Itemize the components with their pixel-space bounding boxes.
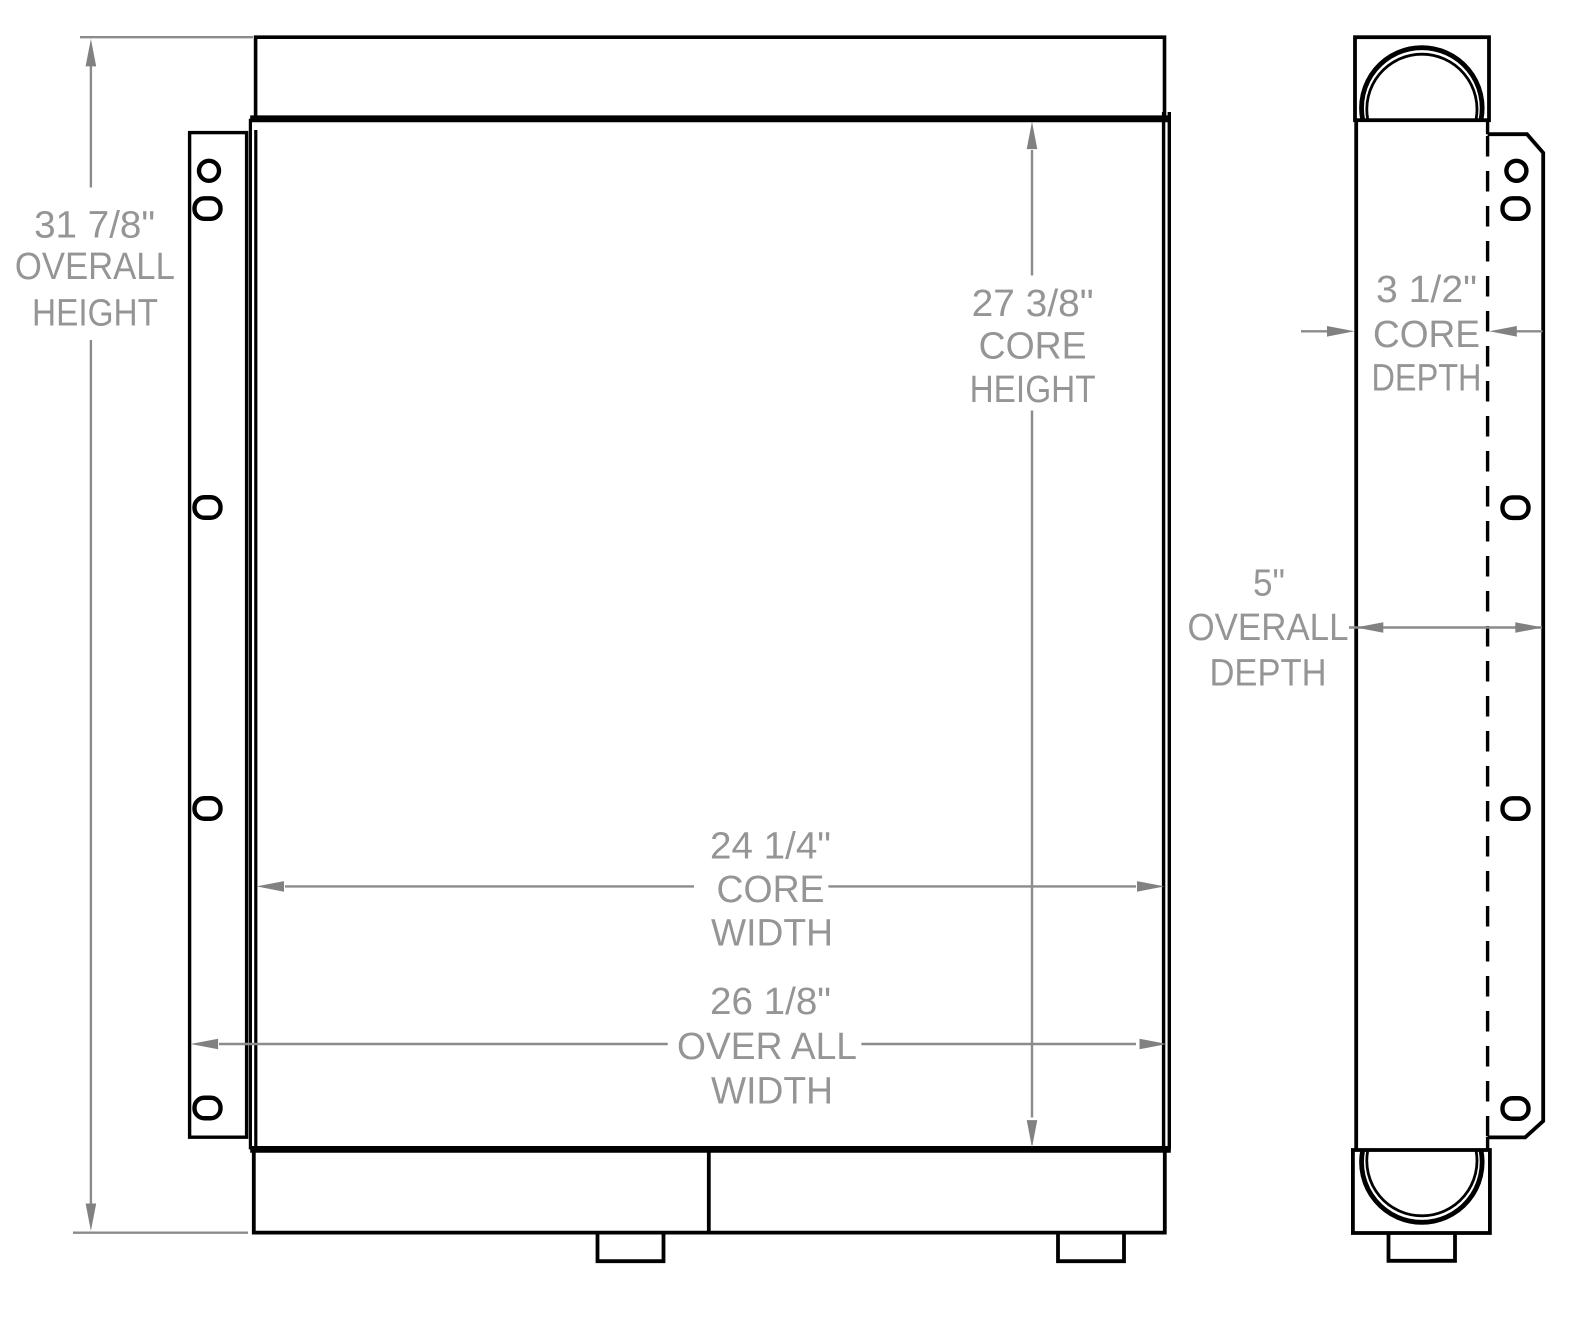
svg-text:HEIGHT: HEIGHT (32, 293, 158, 335)
svg-text:OVERALL: OVERALL (1188, 607, 1349, 649)
svg-text:CORE: CORE (1373, 314, 1480, 356)
svg-text:OVER ALL: OVER ALL (677, 1026, 857, 1068)
svg-text:OVERALL: OVERALL (15, 246, 175, 288)
svg-text:WIDTH: WIDTH (711, 1071, 833, 1113)
svg-text:WIDTH: WIDTH (711, 913, 833, 955)
svg-text:5": 5" (1253, 563, 1285, 605)
svg-text:31 7/8": 31 7/8" (34, 205, 155, 247)
svg-text:3 1/2": 3 1/2" (1376, 269, 1477, 311)
svg-text:HEIGHT: HEIGHT (970, 369, 1096, 411)
svg-text:26 1/8": 26 1/8" (710, 981, 831, 1023)
svg-text:24 1/4": 24 1/4" (710, 826, 831, 868)
svg-text:CORE: CORE (717, 869, 825, 911)
svg-text:DEPTH: DEPTH (1372, 358, 1482, 400)
svg-text:CORE: CORE (979, 326, 1087, 368)
svg-text:27 3/8": 27 3/8" (972, 283, 1094, 325)
svg-text:DEPTH: DEPTH (1210, 653, 1327, 695)
